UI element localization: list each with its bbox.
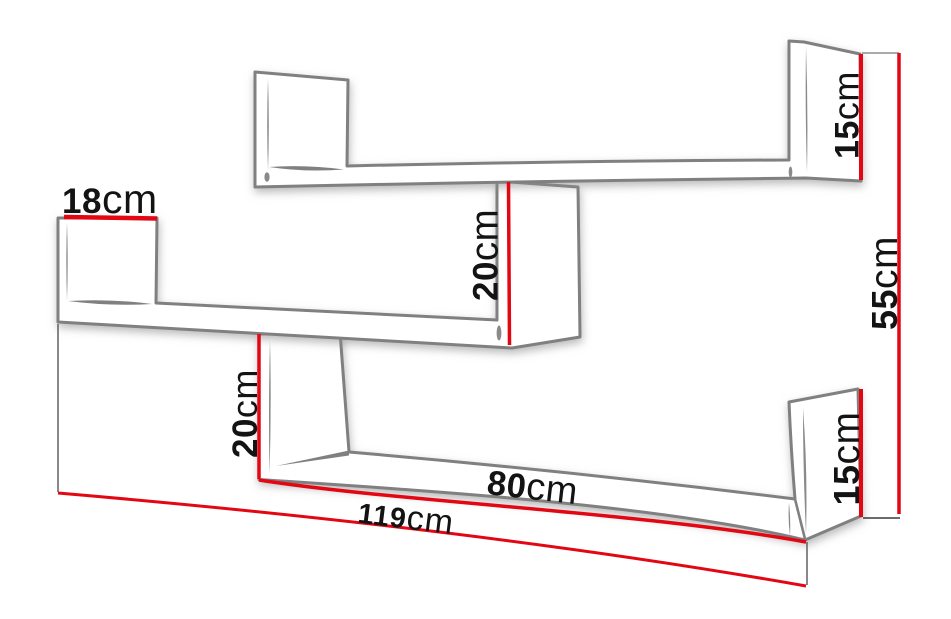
svg-text:15cm: 15cm (825, 411, 868, 505)
svg-text:15cm: 15cm (826, 71, 867, 159)
svg-text:18cm: 18cm (62, 176, 158, 222)
svg-text:55cm: 55cm (863, 236, 906, 330)
svg-text:20cm: 20cm (224, 369, 265, 458)
svg-text:20cm: 20cm (464, 209, 507, 301)
